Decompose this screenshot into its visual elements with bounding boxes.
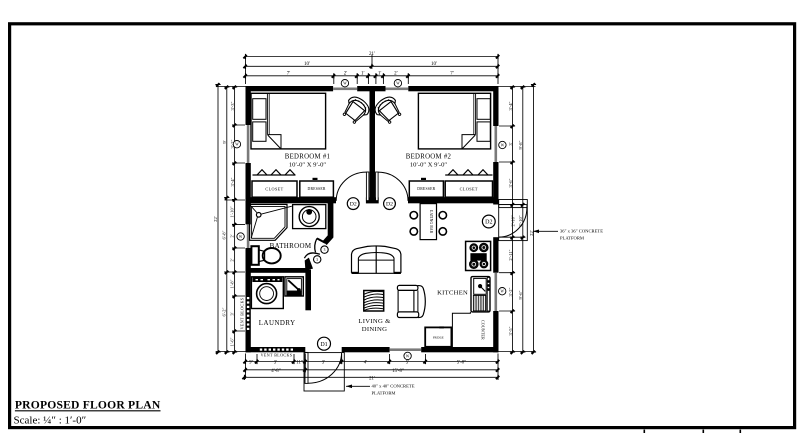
svg-text:2′: 2′ xyxy=(394,71,398,76)
svg-text:9′-8″: 9′-8″ xyxy=(518,140,523,149)
svg-text:KITCHEN: KITCHEN xyxy=(437,289,468,296)
svg-text:5′-8″: 5′-8″ xyxy=(457,360,466,365)
svg-text:3′-5″: 3′-5″ xyxy=(508,326,513,335)
svg-text:1′: 1′ xyxy=(361,71,365,76)
svg-text:5′: 5′ xyxy=(406,360,409,365)
svg-text:3′: 3′ xyxy=(230,312,235,315)
svg-text:1′-6″: 1′-6″ xyxy=(230,337,235,346)
svg-text:DRESSER: DRESSER xyxy=(308,187,326,191)
svg-text:COUNTER: COUNTER xyxy=(481,320,485,340)
svg-text:3′: 3′ xyxy=(508,142,513,145)
svg-text:9′: 9′ xyxy=(222,140,227,143)
svg-text:CLOSET: CLOSET xyxy=(460,186,478,191)
svg-text:BEDROOM #2: BEDROOM #2 xyxy=(406,154,452,161)
svg-text:10′: 10′ xyxy=(304,62,310,67)
svg-text:2′: 2′ xyxy=(230,234,235,237)
svg-text:2′-10″: 2′-10″ xyxy=(510,215,515,226)
svg-text:W: W xyxy=(343,82,347,86)
svg-text:BEDROOM #1: BEDROOM #1 xyxy=(285,154,330,161)
svg-text:3′: 3′ xyxy=(322,360,325,365)
svg-text:4′: 4′ xyxy=(364,360,367,365)
svg-text:3′: 3′ xyxy=(274,360,277,365)
svg-text:D1: D1 xyxy=(320,342,327,348)
svg-text:6′-2″: 6′-2″ xyxy=(222,307,227,316)
svg-text:VENT BLOCKS: VENT BLOCKS xyxy=(239,298,244,330)
svg-text:CLOSET: CLOSET xyxy=(265,186,283,191)
svg-text:2′: 2′ xyxy=(344,71,348,76)
svg-text:10′-0″ X 9′-0″: 10′-0″ X 9′-0″ xyxy=(410,162,448,169)
svg-text:D2: D2 xyxy=(485,220,492,226)
svg-text:W: W xyxy=(501,143,505,147)
svg-text:PLATFORM: PLATFORM xyxy=(372,390,396,395)
svg-text:3′-2″: 3′-2″ xyxy=(508,287,513,296)
svg-text:3′-6″: 3′-6″ xyxy=(508,178,513,187)
svg-text:36″ x 36″ CONCRETE: 36″ x 36″ CONCRETE xyxy=(560,229,603,234)
svg-text:7′: 7′ xyxy=(287,71,291,76)
svg-text:W: W xyxy=(500,290,504,294)
svg-text:15′-8″: 15′-8″ xyxy=(392,369,404,374)
svg-text:6′-8″: 6′-8″ xyxy=(222,230,227,239)
svg-text:W: W xyxy=(406,354,410,358)
svg-text:EATING BAR: EATING BAR xyxy=(429,210,433,234)
svg-text:D2: D2 xyxy=(386,202,393,208)
svg-text:1′: 1′ xyxy=(378,71,382,76)
svg-text:LIVING &: LIVING & xyxy=(358,318,391,325)
svg-text:10′: 10′ xyxy=(431,62,437,67)
svg-text:3′-3″: 3′-3″ xyxy=(230,101,235,110)
svg-text:21′: 21′ xyxy=(369,376,375,381)
svg-text:40″ x 40″ CONCRETE: 40″ x 40″ CONCRETE xyxy=(372,384,415,389)
svg-text:3′-4″: 3′-4″ xyxy=(508,101,513,110)
svg-text:DINING: DINING xyxy=(362,326,388,333)
svg-text:W: W xyxy=(235,143,239,147)
svg-text:BATHROOM: BATHROOM xyxy=(270,242,312,250)
svg-text:9″: 9″ xyxy=(249,360,253,365)
svg-text:2′-10″: 2′-10″ xyxy=(518,215,523,226)
svg-text:D2: D2 xyxy=(350,202,357,208)
svg-text:PROPOSED FLOOR PLAN: PROPOSED FLOOR PLAN xyxy=(15,398,161,411)
svg-text:3: 3 xyxy=(324,248,326,252)
svg-text:2′-11″: 2′-11″ xyxy=(508,249,513,260)
svg-text:2′: 2′ xyxy=(230,258,235,261)
svg-text:7′: 7′ xyxy=(450,71,454,76)
svg-text:9′-6″: 9′-6″ xyxy=(518,290,523,299)
svg-text:21′: 21′ xyxy=(369,52,375,57)
svg-text:22′: 22′ xyxy=(213,216,218,222)
svg-text:DRESSER: DRESSER xyxy=(417,187,435,191)
svg-text:11″: 11″ xyxy=(296,360,303,365)
svg-text:1′-8″: 1′-8″ xyxy=(230,279,235,288)
svg-text:LAUNDRY: LAUNDRY xyxy=(259,320,296,327)
svg-text:Scale: ¼″ : 1′-0″: Scale: ¼″ : 1′-0″ xyxy=(14,415,87,427)
svg-text:3′-4″: 3′-4″ xyxy=(230,177,235,186)
svg-text:FRIDGE: FRIDGE xyxy=(433,336,444,340)
svg-text:W: W xyxy=(239,235,243,239)
svg-text:W: W xyxy=(396,82,400,86)
svg-text:1′-10″: 1′-10″ xyxy=(230,206,235,217)
svg-text:4′-8″: 4′-8″ xyxy=(271,369,280,374)
svg-text:PLATFORM: PLATFORM xyxy=(560,235,584,240)
svg-text:10′-0″ X 9′-0″: 10′-0″ X 9′-0″ xyxy=(289,162,327,169)
svg-text:3: 3 xyxy=(316,258,318,262)
svg-text:VENT BLOCKS: VENT BLOCKS xyxy=(261,352,293,357)
